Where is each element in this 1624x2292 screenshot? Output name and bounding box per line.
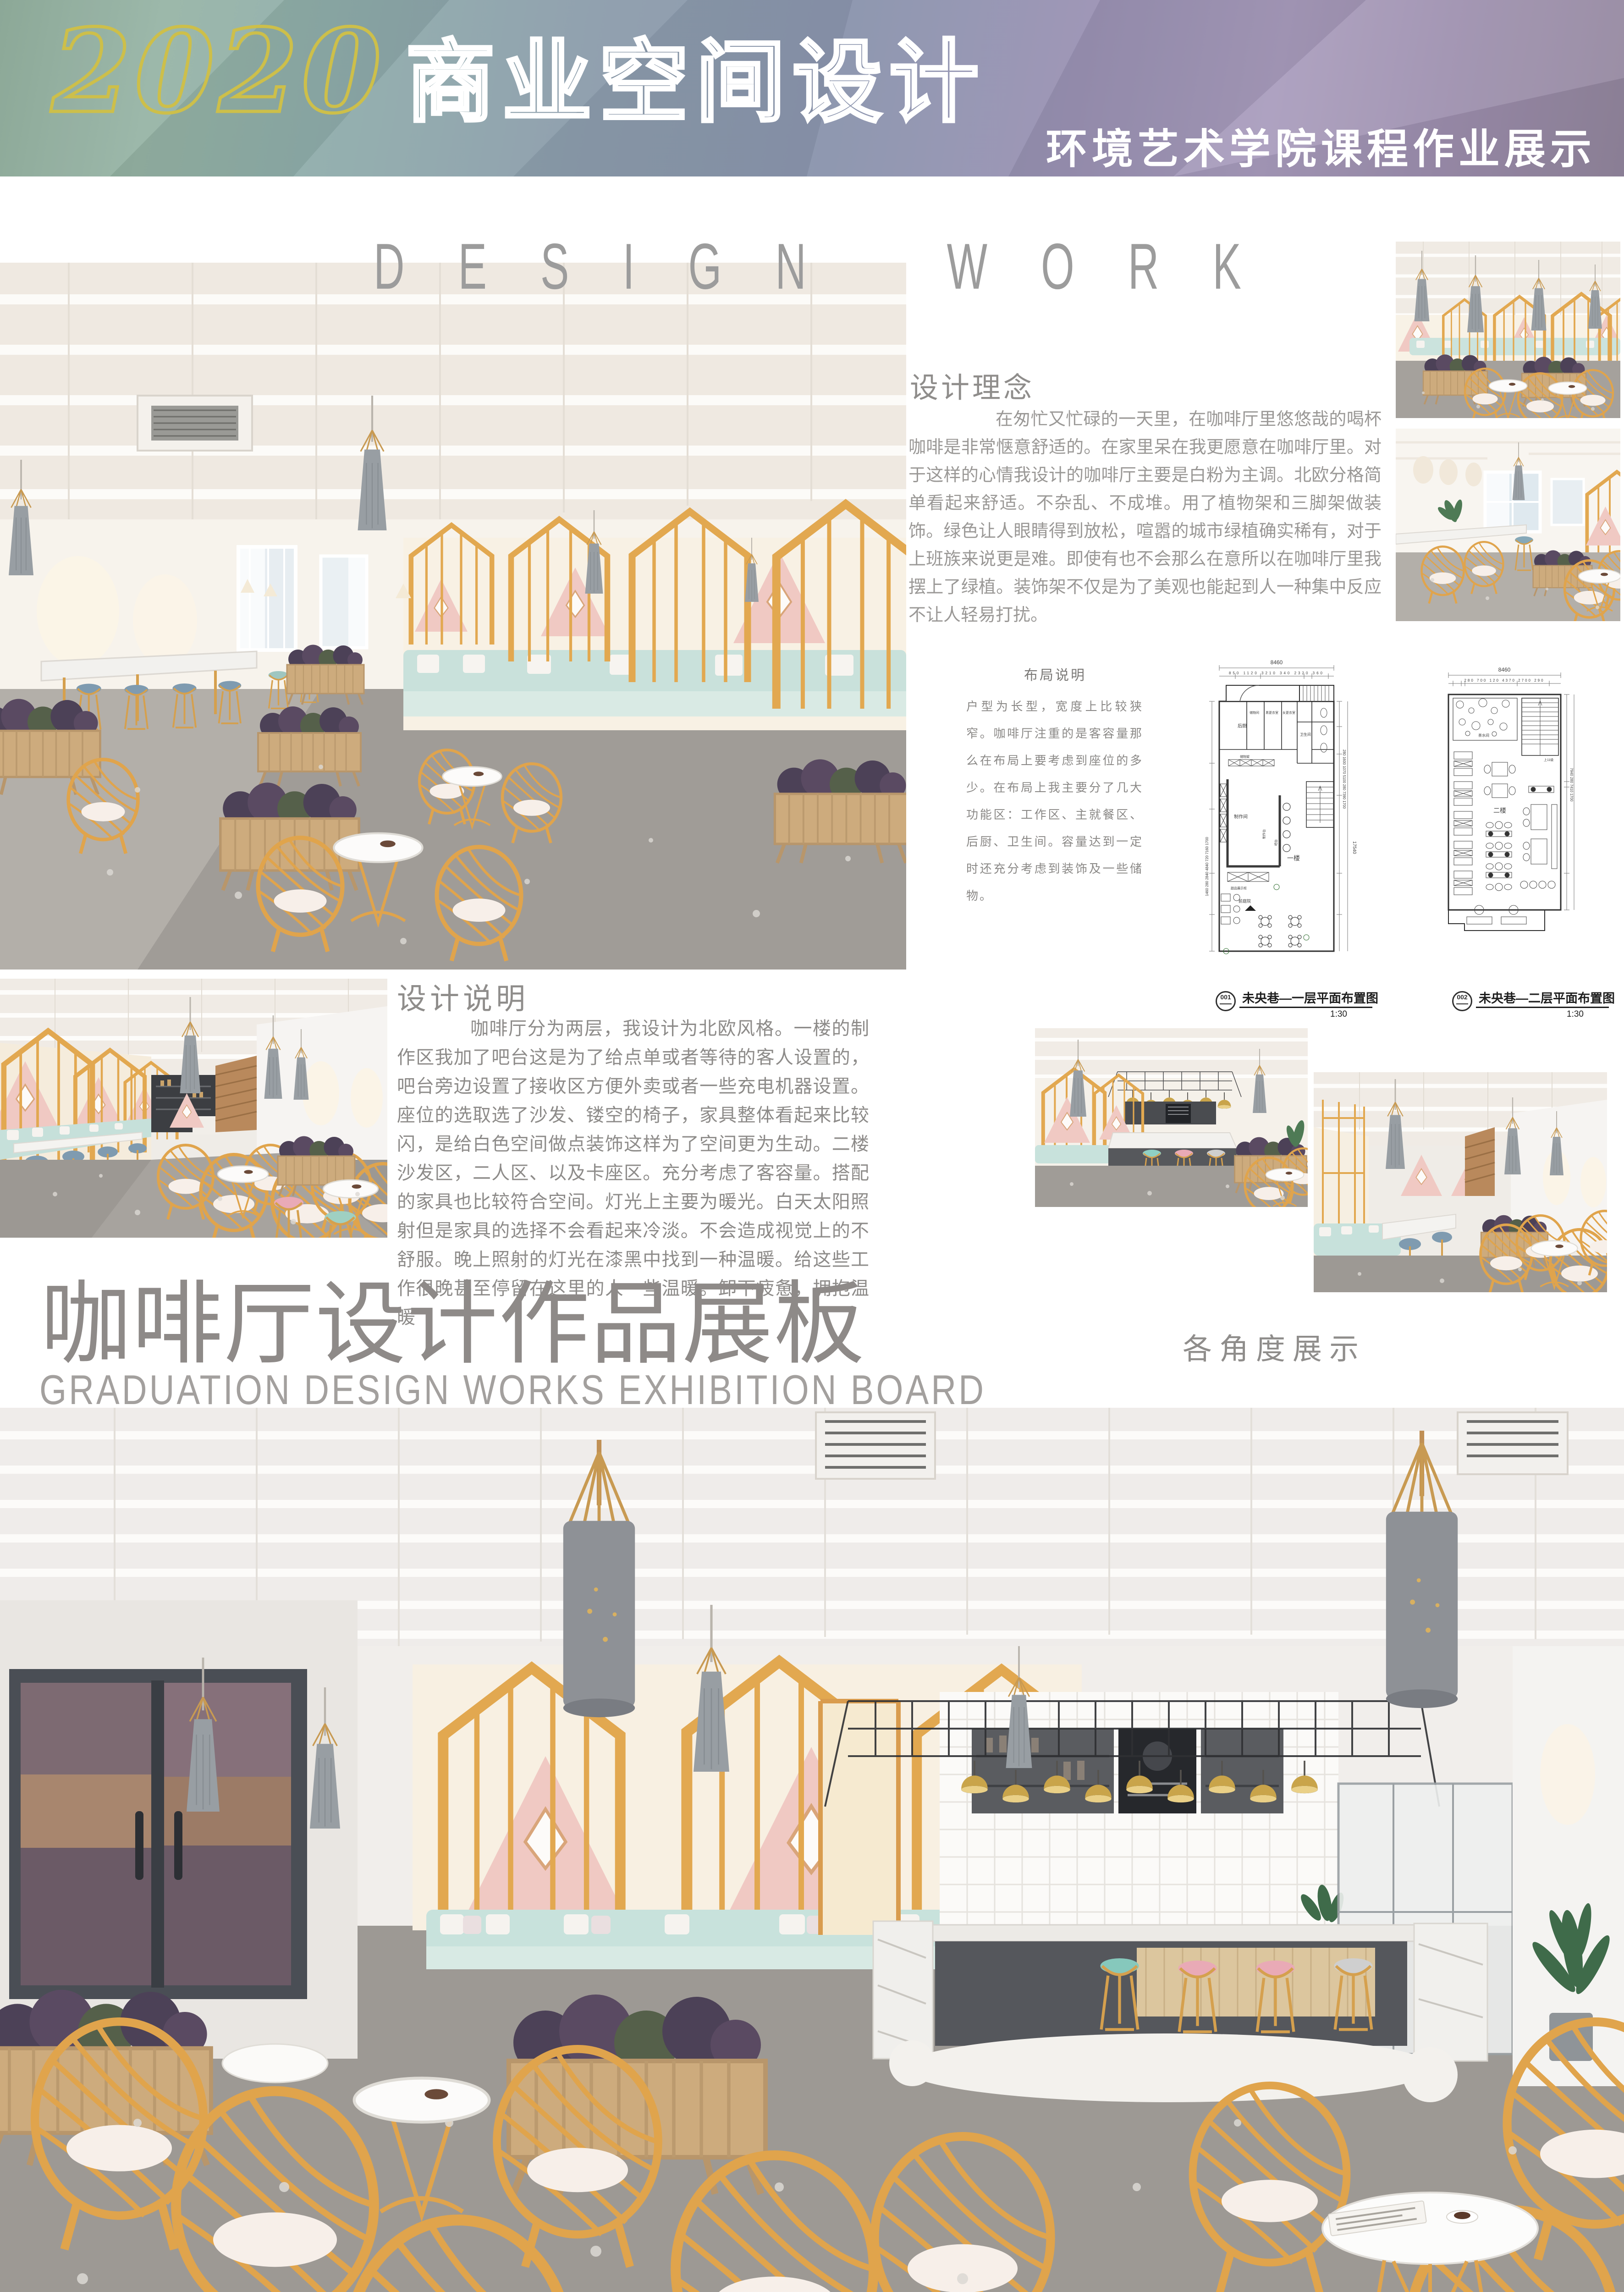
layout-body: 户型为长型，宽度上比较狭窄。咖啡厅注重的是客容量那么在布局上要考虑到座位的多少。… bbox=[966, 693, 1143, 909]
plan1-room-wc: 卫生间 bbox=[1300, 732, 1311, 737]
plan-number-badge: 001 bbox=[1216, 991, 1236, 1011]
plan1-room-kitchen: 后厨 bbox=[1238, 723, 1247, 729]
plan1-caption: 001 未央巷—一层平面布置图 1:30 bbox=[1216, 985, 1374, 1026]
plan2-dim-top: 8460 bbox=[1498, 667, 1511, 673]
header-year: 2020 bbox=[51, 4, 385, 138]
plan1-room-locker-women: 女更衣室 bbox=[1283, 711, 1295, 715]
plan1-room-bar: 吧台 bbox=[1274, 839, 1278, 846]
plan1-dim-right-segs: 280 1600 1070 5100 280 7390 1700 bbox=[1342, 749, 1346, 809]
plan1-dim-right-total: 17540 bbox=[1352, 841, 1357, 854]
concept-heading: 设计理念 bbox=[910, 364, 1035, 406]
main-title-en: GRADUATION DESIGN WORKS EXHIBITION BOARD bbox=[39, 1366, 986, 1414]
plan1-room-storage: 储物间 bbox=[1250, 711, 1259, 715]
angles-label: 各角度展示 bbox=[1183, 1326, 1366, 1368]
plan1-room-locker-men: 男更衣室 bbox=[1266, 711, 1278, 715]
plan2-dim-right-segs: 7940 280 7410 1700 bbox=[1569, 768, 1574, 802]
plan1-room-worktop: 制作台 bbox=[1262, 829, 1266, 839]
caption-rule bbox=[1476, 1007, 1609, 1008]
header-subtitle: 环境艺术学院课程作业展示 bbox=[1046, 116, 1596, 175]
design-work-title: DESIGN WORK bbox=[374, 229, 1295, 304]
floor-plan-level2: 8460 280 700 120 4370 2700 290 7940 280 … bbox=[1439, 667, 1577, 960]
photo-angle-bar-render bbox=[1035, 1028, 1308, 1207]
plan2-floor-label: 二楼 bbox=[1493, 807, 1506, 814]
plan1-floor-label: 一楼 bbox=[1287, 854, 1300, 862]
plan2-caption: 002 未央巷—二层平面布置图 1:30 bbox=[1452, 985, 1610, 1026]
plan1-caption-text: 未央巷—一层平面布置图 bbox=[1242, 988, 1378, 1006]
layout-heading: 布局说明 bbox=[967, 664, 1143, 684]
plan-number-badge: 002 bbox=[1452, 991, 1472, 1011]
plan1-room-dessert: 甜品展示柜 bbox=[1231, 886, 1247, 890]
plan1-dim-left-segs: 1460 280 2840 4840 720 7160 1700 bbox=[1205, 837, 1209, 896]
photo-perspective-render bbox=[0, 979, 387, 1238]
header-title: 商业空间设计 bbox=[406, 10, 986, 139]
plan1-room-shelf: 储物架 bbox=[1240, 755, 1250, 759]
plan2-stairs-note: 上11级 bbox=[1544, 758, 1553, 762]
photo-right-top-render bbox=[1396, 242, 1620, 418]
caption-rule bbox=[1239, 1007, 1372, 1008]
plan1-room-workshop: 制作间 bbox=[1234, 814, 1248, 820]
main-title-zh: 咖啡厅设计作品展板 bbox=[40, 1251, 865, 1382]
plan2-dim-right-total: 17890 bbox=[1575, 800, 1577, 813]
photo-main-hall-render bbox=[0, 263, 906, 970]
photo-bottom-bar-render bbox=[0, 1408, 1624, 2292]
plan2-caption-text: 未央巷—二层平面布置图 bbox=[1479, 988, 1615, 1006]
floor-plan-level1: 8460 850 1120 3210 340 2320 360 1460 280… bbox=[1192, 658, 1357, 983]
plan2-dim-top-segs: 280 700 120 4370 2700 290 bbox=[1464, 678, 1544, 683]
photo-right-bottom-render bbox=[1396, 429, 1620, 621]
concept-body: 在匆忙又忙碌的一天里，在咖啡厅里悠悠哉的喝杯咖啡是非常惬意舒适的。在家里呆在我更… bbox=[908, 406, 1382, 629]
plan1-court-label: 前庭院 bbox=[1239, 898, 1251, 904]
photo-angle-hall-render bbox=[1314, 1072, 1607, 1292]
description-heading: 设计说明 bbox=[397, 975, 529, 1018]
plan1-dim-top-segs: 850 1120 3210 340 2320 360 bbox=[1229, 671, 1324, 675]
plan2-scale: 1:30 bbox=[1567, 1009, 1584, 1019]
plan1-dim-top: 8460 bbox=[1271, 659, 1283, 666]
plan1-scale: 1:30 bbox=[1330, 1009, 1347, 1019]
header-banner: 2020 商业空间设计 环境艺术学院课程作业展示 bbox=[0, 0, 1624, 176]
plan2-room-tea: 茶水间 bbox=[1478, 733, 1489, 738]
